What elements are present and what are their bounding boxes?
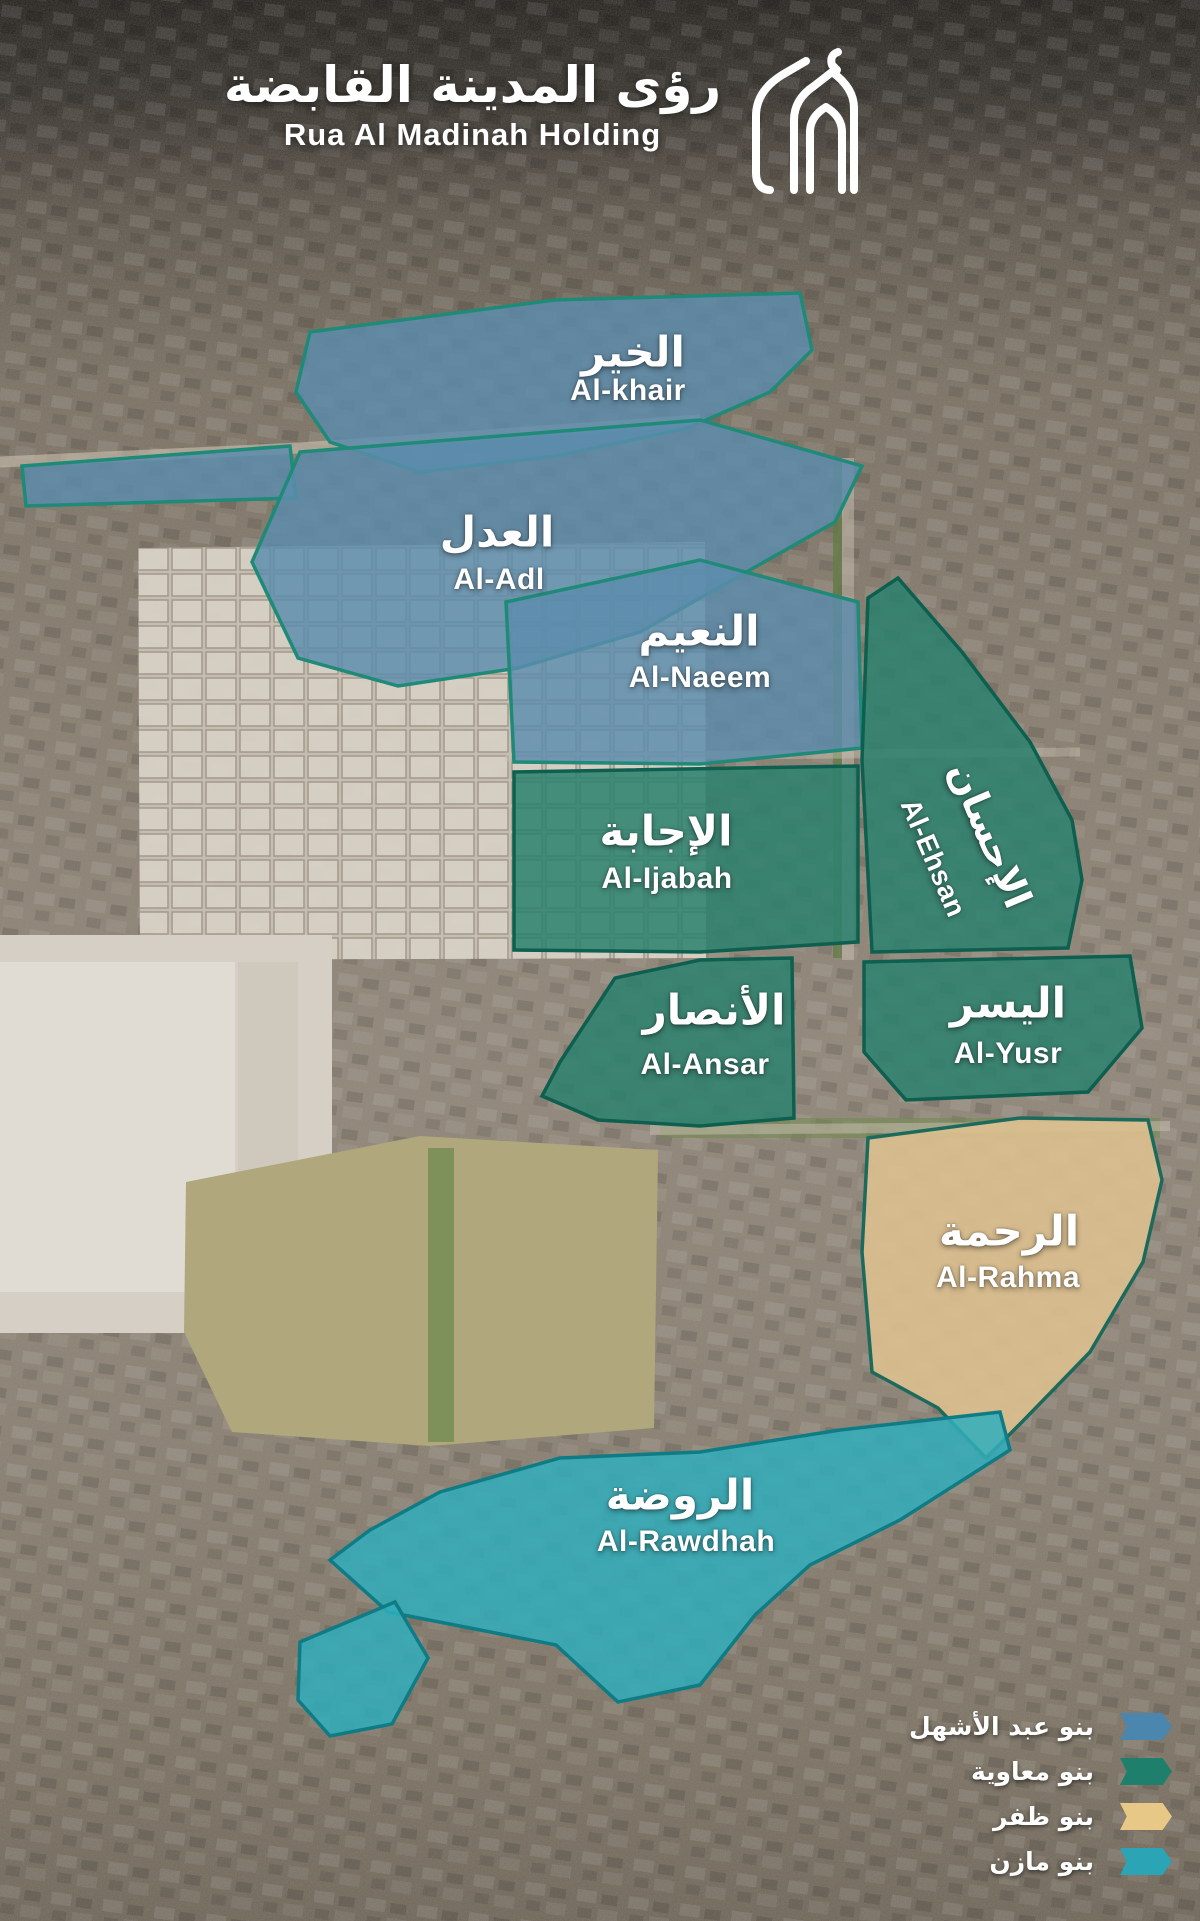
legend-color-chip — [1120, 1758, 1172, 1785]
tree-strip-vertical — [428, 1148, 454, 1442]
legend-color-chip — [1120, 1803, 1172, 1830]
map-poster: رؤى المدينة القابضة Rua Al Madinah Holdi… — [0, 0, 1200, 1921]
legend-item-banu-abd-al-ashhal: بنو عبد الأشهل — [909, 1712, 1172, 1741]
district-region-al-ijabah — [514, 766, 858, 952]
legend-item-banu-zafar: بنو ظفر — [909, 1802, 1172, 1831]
district-region-al-naeem — [506, 560, 862, 764]
legend-label: بنو معاوية — [971, 1757, 1094, 1786]
district-region-al-yusr — [864, 956, 1142, 1100]
open-field — [184, 1136, 658, 1446]
legend-item-banu-mazin: بنو مازن — [909, 1847, 1172, 1876]
legend-color-chip — [1120, 1713, 1172, 1740]
legend-color-chip — [1120, 1848, 1172, 1875]
legend-label: بنو عبد الأشهل — [909, 1712, 1094, 1741]
legend: بنو عبد الأشهل بنو معاوية بنو ظفر بنو ما… — [909, 1712, 1172, 1892]
arch-logo-icon — [748, 44, 868, 194]
map-canvas — [0, 0, 1200, 1921]
legend-item-banu-muawiya: بنو معاوية — [909, 1757, 1172, 1786]
legend-label: بنو ظفر — [993, 1802, 1094, 1831]
legend-label: بنو مازن — [989, 1847, 1094, 1876]
